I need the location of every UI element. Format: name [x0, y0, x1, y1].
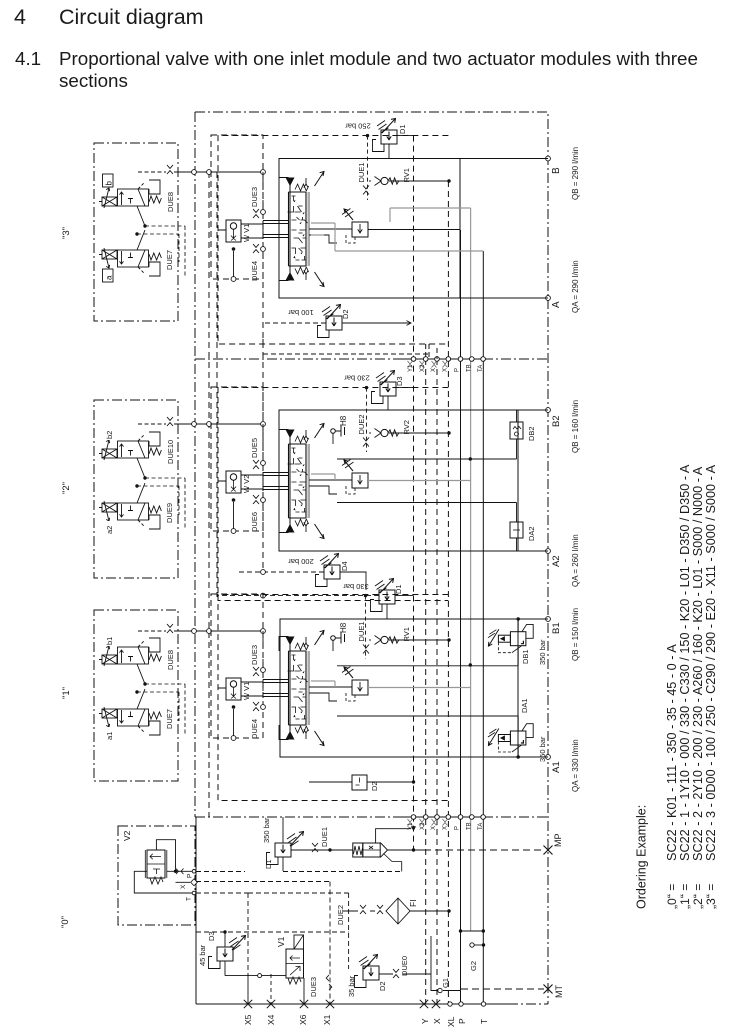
svg-text:D1: D1	[394, 584, 403, 594]
svg-text:RV1: RV1	[402, 168, 411, 182]
svg-text:B: B	[551, 167, 562, 174]
svg-text:DUE1: DUE1	[320, 827, 329, 847]
svg-text:DUE9: DUE9	[165, 503, 174, 523]
svg-text:a2: a2	[105, 526, 114, 534]
svg-text:D2: D2	[370, 781, 379, 791]
svg-text:a1: a1	[105, 732, 114, 740]
svg-text:100 bar: 100 bar	[288, 308, 314, 317]
svg-text:V1: V1	[276, 936, 286, 947]
svg-text:X: X	[180, 884, 187, 889]
svg-text:DUE5: DUE5	[250, 438, 259, 458]
svg-text:"3": "3"	[61, 227, 72, 239]
svg-text:A: A	[551, 301, 562, 308]
svg-text:„2“ =: „2“ =	[691, 884, 705, 909]
svg-text:„0“ =: „0“ =	[665, 884, 679, 909]
svg-text:RV1: RV1	[402, 627, 411, 641]
svg-text:QB = 160 l/min: QB = 160 l/min	[571, 400, 580, 453]
svg-text:X4: X4	[266, 1014, 276, 1025]
svg-text:DUE7: DUE7	[165, 709, 174, 729]
svg-text:„1“ =: „1“ =	[678, 884, 692, 909]
svg-text:W V2: W V2	[242, 475, 251, 493]
svg-text:QB = 150 l/min: QB = 150 l/min	[571, 608, 580, 661]
svg-text:"2": "2"	[61, 482, 72, 494]
svg-text:D4: D4	[340, 561, 349, 571]
svg-text:DUE8: DUE8	[166, 192, 175, 212]
svg-text:A1: A1	[551, 761, 562, 773]
svg-text:DUE1: DUE1	[357, 621, 366, 641]
svg-text:XL: XL	[446, 1016, 456, 1027]
svg-text:"1": "1"	[61, 687, 72, 699]
svg-text:DA1: DA1	[520, 698, 529, 713]
svg-text:MP: MP	[553, 834, 563, 848]
svg-text:b1: b1	[105, 637, 114, 645]
svg-text:QB = 290 l/min: QB = 290 l/min	[571, 147, 580, 200]
svg-text:350 bar: 350 bar	[262, 817, 271, 843]
svg-text:DUE2: DUE2	[336, 905, 345, 925]
svg-text:DUE3: DUE3	[250, 645, 259, 665]
svg-text:DUE7: DUE7	[165, 250, 174, 270]
svg-text:330 bar: 330 bar	[343, 582, 369, 591]
svg-text:SC22 - 1 - 1Y10 - 000 / 330 -: SC22 - 1 - 1Y10 - 000 / 330 - C330 / 150…	[678, 464, 692, 861]
svg-text:H8: H8	[339, 415, 348, 426]
svg-text:MT: MT	[554, 985, 564, 998]
svg-text:W V1: W V1	[242, 682, 251, 700]
svg-text:350 bar: 350 bar	[538, 639, 547, 665]
svg-text:DB1: DB1	[521, 649, 530, 664]
svg-text:DUE3: DUE3	[309, 977, 318, 997]
svg-text:D2: D2	[341, 309, 350, 319]
svg-text:T: T	[479, 1019, 489, 1024]
svg-text:DA2: DA2	[527, 526, 536, 541]
svg-text:G2: G2	[469, 961, 478, 971]
svg-text:D3: D3	[395, 376, 404, 386]
svg-text:SC22 - K01 - 111 - 350 - 35 -: SC22 - K01 - 111 - 350 - 35 - 45 - 0 - A	[665, 644, 679, 861]
svg-text:X1: X1	[322, 1014, 332, 1025]
svg-text:DUE4: DUE4	[250, 719, 259, 739]
svg-text:DUE10: DUE10	[166, 440, 175, 464]
svg-text:D3: D3	[207, 931, 216, 941]
svg-text:SC22 - 3 - 0D00 - 100 / 250 -: SC22 - 3 - 0D00 - 100 / 250 - C290 / 290…	[704, 464, 718, 861]
svg-text:G1: G1	[441, 978, 450, 988]
svg-text:DUE6: DUE6	[250, 512, 259, 532]
svg-text:350 bar: 350 bar	[538, 736, 547, 762]
svg-text:QA = 330 l/min: QA = 330 l/min	[571, 739, 580, 792]
svg-text:X: X	[432, 1018, 442, 1024]
svg-text:DUE1: DUE1	[357, 162, 366, 182]
svg-text:P: P	[187, 874, 194, 878]
svg-text:"0": "0"	[60, 916, 71, 928]
svg-text:QA = 260 l/min: QA = 260 l/min	[571, 534, 580, 587]
svg-text:X6: X6	[298, 1014, 308, 1025]
svg-text:FI: FI	[408, 899, 418, 907]
svg-text:230 bar: 230 bar	[344, 374, 370, 383]
svg-text:T: T	[186, 897, 193, 901]
svg-text:250 bar: 250 bar	[345, 122, 371, 131]
svg-text:a: a	[105, 275, 114, 280]
svg-text:A2: A2	[551, 555, 562, 567]
svg-text:35 bar: 35 bar	[347, 975, 356, 997]
svg-text:Ordering Example:: Ordering Example:	[635, 805, 649, 909]
svg-text:DUE3: DUE3	[250, 187, 259, 207]
svg-text:D1: D1	[398, 124, 407, 134]
svg-text:b2: b2	[105, 431, 114, 439]
svg-text:P: P	[457, 1018, 467, 1024]
svg-text:45 bar: 45 bar	[198, 944, 207, 966]
svg-text:V2: V2	[122, 830, 132, 841]
svg-text:D1: D1	[264, 859, 273, 869]
svg-text:DUE4: DUE4	[250, 261, 259, 281]
svg-text:RV2: RV2	[402, 420, 411, 434]
svg-text:DB2: DB2	[527, 426, 536, 441]
svg-text:D2: D2	[378, 981, 387, 991]
svg-text:W V1: W V1	[242, 224, 251, 242]
svg-text:H8: H8	[339, 622, 348, 633]
svg-text:DUE0: DUE0	[400, 956, 409, 976]
svg-text:B1: B1	[551, 622, 562, 634]
svg-text:Y: Y	[420, 1018, 430, 1024]
svg-text:b: b	[105, 181, 114, 186]
svg-text:„3“ =: „3“ =	[704, 884, 718, 909]
svg-text:QA = 290 l/min: QA = 290 l/min	[571, 260, 580, 313]
svg-text:B2: B2	[551, 415, 562, 427]
svg-text:DUE8: DUE8	[166, 650, 175, 670]
svg-text:DUE2: DUE2	[357, 414, 366, 434]
svg-text:200 bar: 200 bar	[288, 557, 314, 566]
svg-text:X5: X5	[243, 1014, 253, 1025]
svg-text:SC22 - 2 - 2Y10 - 200 / 230 -: SC22 - 2 - 2Y10 - 200 / 230 - A260 / 160…	[691, 466, 705, 861]
